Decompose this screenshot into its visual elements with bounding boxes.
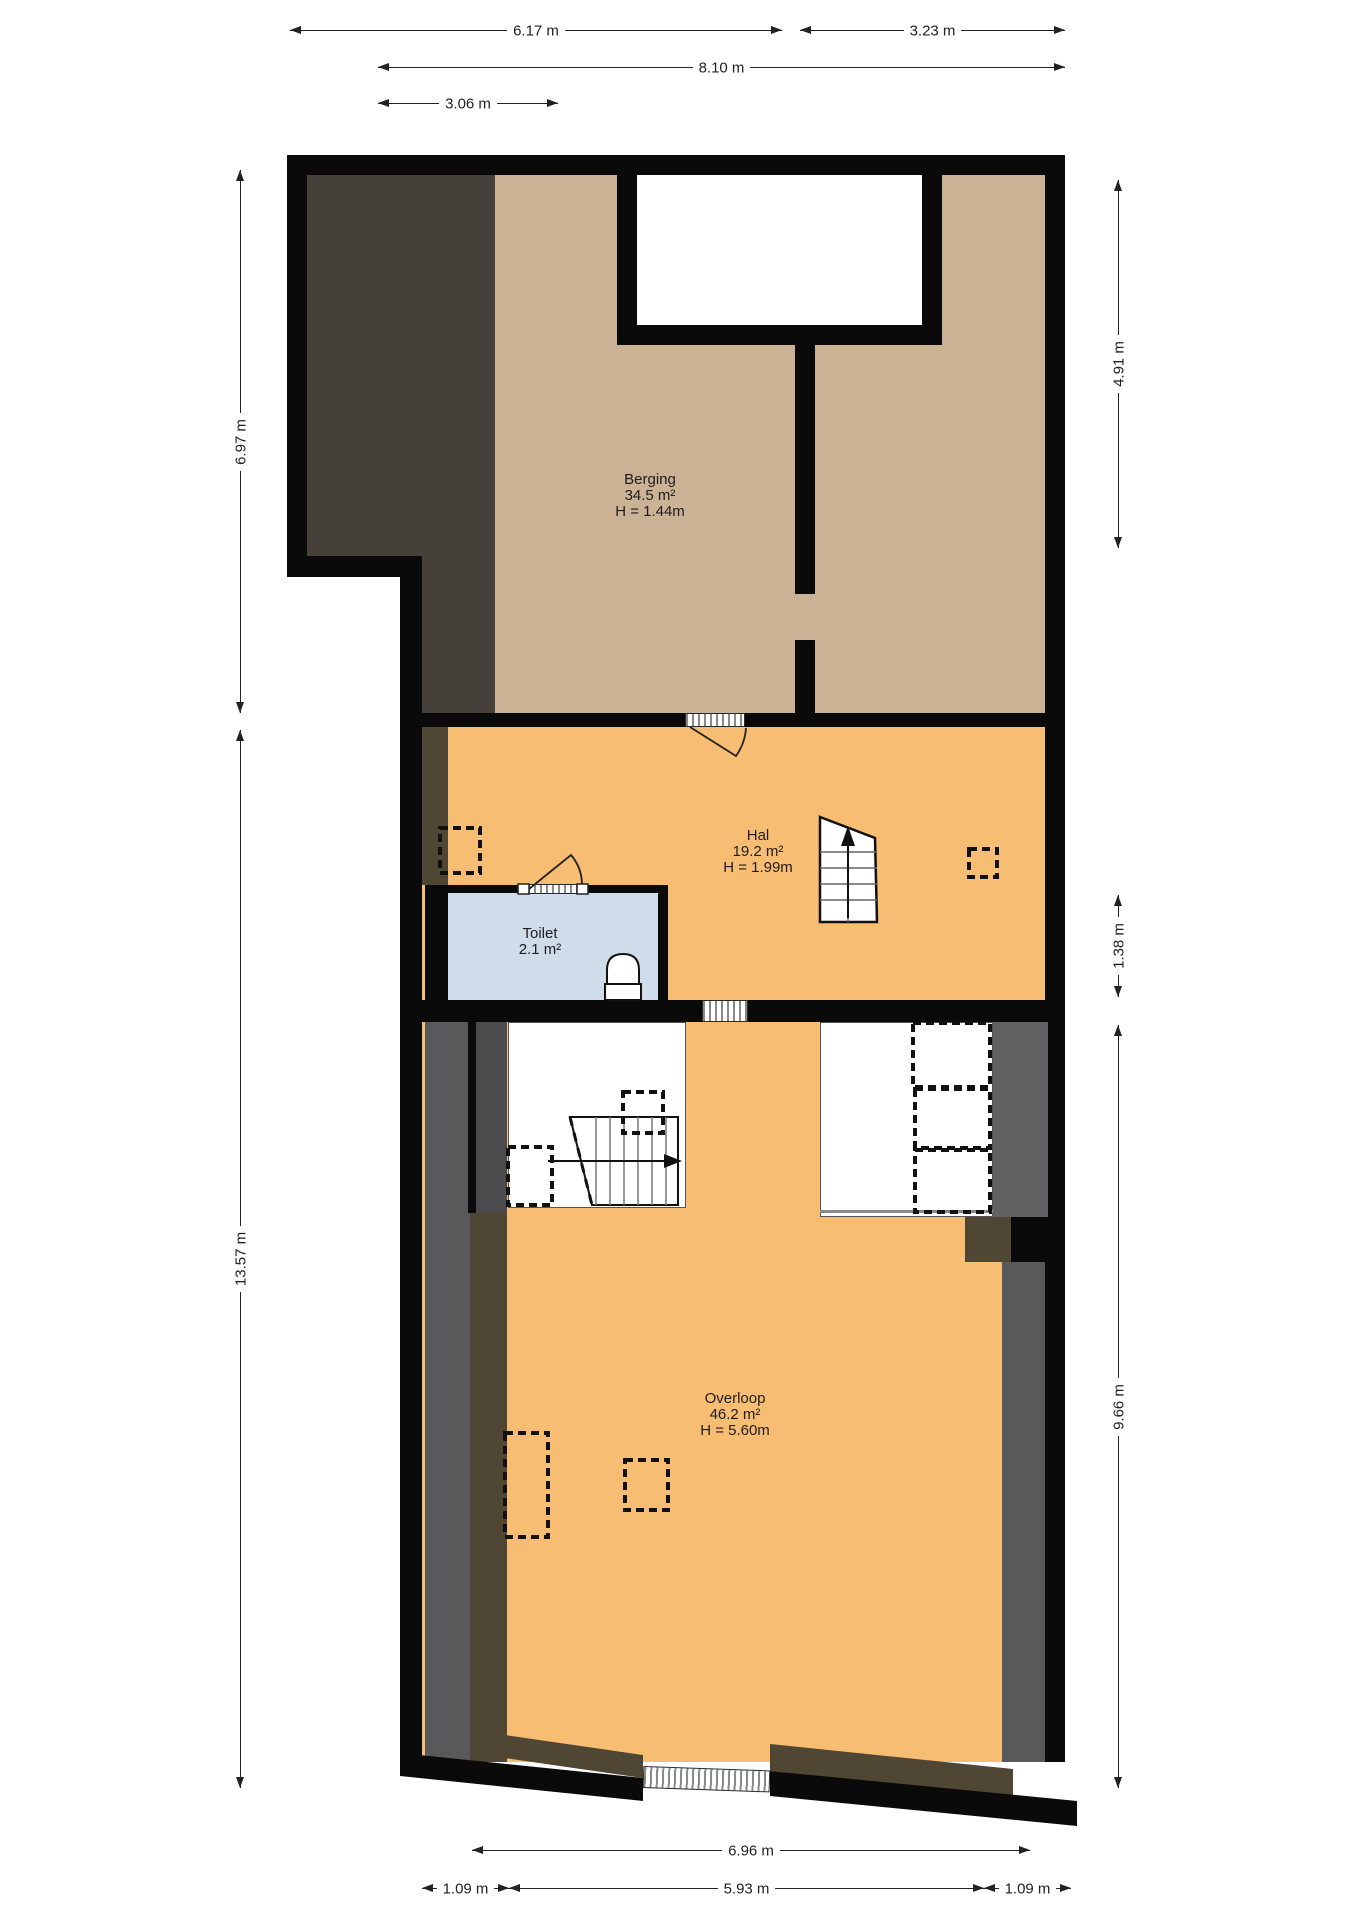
- overloop-right-wall-elbow: [1011, 1217, 1045, 1262]
- overloop-right-gray-strip-lower: [1002, 1262, 1045, 1762]
- closet-shelf-line: [820, 1210, 993, 1213]
- dim-label: 6.96 m: [722, 1843, 780, 1860]
- overloop-left-olive-strip: [470, 1213, 507, 1762]
- hal-left-olive-strip: [422, 727, 448, 885]
- dim-bottom-1-09-right: 1.09 m: [984, 1888, 1071, 1889]
- void-opening: [637, 175, 922, 325]
- dim-bottom-6-96: 6.96 m: [472, 1850, 1030, 1851]
- bottom-right-wall: [770, 1771, 1077, 1826]
- dim-label: 13.57 m: [233, 1226, 250, 1292]
- dim-label: 9.66 m: [1111, 1378, 1128, 1436]
- dim-bottom-5-93: 5.93 m: [509, 1888, 984, 1889]
- dim-label: 1.09 m: [437, 1881, 495, 1898]
- dim-right-9-66: 9.66 m: [1118, 1025, 1119, 1788]
- attic-shadow-area: [307, 175, 495, 556]
- room-area: 34.5 m²: [615, 488, 685, 504]
- dim-left-6-97: 6.97 m: [240, 170, 241, 713]
- floor-plan-canvas: Berging 34.5 m² H = 1.44m Hal 19.2 m² H …: [0, 0, 1358, 1920]
- dim-top-6-17: 6.17 m: [290, 30, 782, 31]
- dim-label: 3.23 m: [904, 23, 962, 40]
- dim-top-3-06: 3.06 m: [378, 103, 558, 104]
- toilet-right-wall: [658, 893, 668, 1000]
- toilet-left-wall: [425, 893, 448, 1000]
- room-label-toilet: Toilet 2.1 m²: [519, 926, 562, 958]
- room-area: 19.2 m²: [723, 844, 793, 860]
- dim-label: 5.93 m: [718, 1881, 776, 1898]
- overloop-left-gray-strip: [425, 1022, 470, 1762]
- room-area: 2.1 m²: [519, 942, 562, 958]
- dim-label: 4.91 m: [1111, 335, 1128, 393]
- overloop-right-olive-square: [965, 1217, 1011, 1262]
- room-label-overloop: Overloop 46.2 m² H = 5.60m: [700, 1391, 770, 1439]
- dim-label: 3.06 m: [439, 96, 497, 113]
- entrance-threshold: [643, 1766, 771, 1792]
- room-name: Toilet: [519, 926, 562, 942]
- room-area: 46.2 m²: [700, 1407, 770, 1423]
- dim-label: 6.97 m: [233, 413, 250, 471]
- room-name: Hal: [723, 828, 793, 844]
- attic-shadow-area-lower: [422, 556, 495, 713]
- overloop-door-threshold: [702, 1000, 748, 1022]
- berging-door-threshold: [685, 713, 745, 727]
- overloop-left-black-line: [468, 1022, 476, 1213]
- dim-label: 1.09 m: [999, 1881, 1057, 1898]
- berging-divider-wall-upper: [795, 345, 815, 594]
- dim-left-13-57: 13.57 m: [240, 730, 241, 1788]
- room-height: H = 5.60m: [700, 1423, 770, 1439]
- dim-top-8-10: 8.10 m: [378, 67, 1065, 68]
- berging-divider-wall-lower: [795, 640, 815, 713]
- overloop-left-dark-strip: [476, 1022, 507, 1213]
- room-name: Overloop: [700, 1391, 770, 1407]
- closet-room: [820, 1022, 993, 1217]
- room-height: H = 1.99m: [723, 860, 793, 876]
- toilet-door-threshold: [527, 884, 578, 894]
- room-label-berging: Berging 34.5 m² H = 1.44m: [615, 472, 685, 520]
- room-height: H = 1.44m: [615, 504, 685, 520]
- left-notch-cutout: [287, 577, 400, 727]
- room-label-hal: Hal 19.2 m² H = 1.99m: [723, 828, 793, 876]
- room-name: Berging: [615, 472, 685, 488]
- stair-room: [508, 1022, 686, 1208]
- dim-label: 1.38 m: [1111, 917, 1128, 975]
- dim-right-4-91: 4.91 m: [1118, 180, 1119, 548]
- dim-label: 8.10 m: [693, 60, 751, 77]
- dim-right-1-38: 1.38 m: [1118, 895, 1119, 997]
- dim-label: 6.17 m: [507, 23, 565, 40]
- dim-top-3-23: 3.23 m: [800, 30, 1065, 31]
- dim-bottom-1-09-left: 1.09 m: [422, 1888, 509, 1889]
